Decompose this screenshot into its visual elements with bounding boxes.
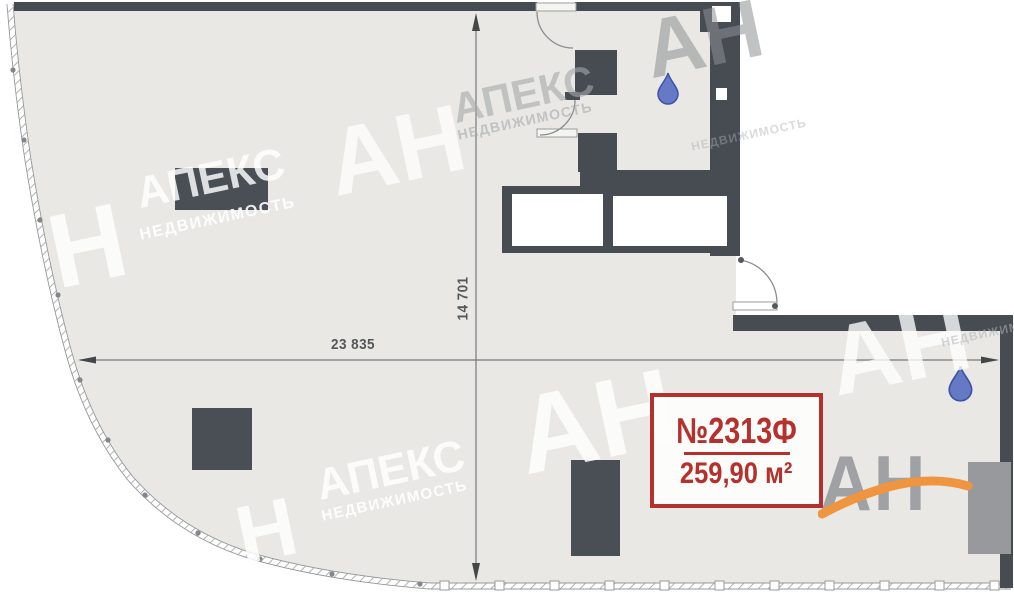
unit-label-separator (684, 452, 790, 455)
wall-top-right (575, 2, 706, 11)
corner-niche (712, 6, 731, 22)
floorplan-canvas: Н АПЕКС НЕДВИЖИМОСТЬ АН АПЕКС НЕДВИЖИМОС… (0, 0, 1014, 600)
shaft-box-left (512, 194, 603, 246)
wall-niche (716, 88, 727, 100)
wall-stub-door (565, 92, 580, 100)
wall-top-left (14, 2, 537, 11)
door-lower-room (733, 257, 778, 310)
shaft-box-right (613, 196, 727, 246)
agency-logo-swoosh-icon (818, 456, 978, 526)
dimension-width-label: 23 835 (321, 336, 386, 353)
unit-label-box: №2313Ф 259,90 м² (650, 393, 823, 508)
fixture-block-center (571, 460, 620, 556)
fixture-block-bottom-left (192, 408, 252, 470)
fixture-block-top-left (175, 168, 268, 210)
unit-number: №2313Ф (676, 412, 797, 450)
wall-segment-vertical (578, 133, 617, 172)
agency-logo: АН (818, 438, 978, 533)
dimension-height-label: 14 701 (455, 266, 472, 331)
unit-area: 259,90 м² (680, 458, 792, 490)
pillar-block (575, 50, 617, 95)
wall-lower-room-top (733, 315, 1013, 331)
